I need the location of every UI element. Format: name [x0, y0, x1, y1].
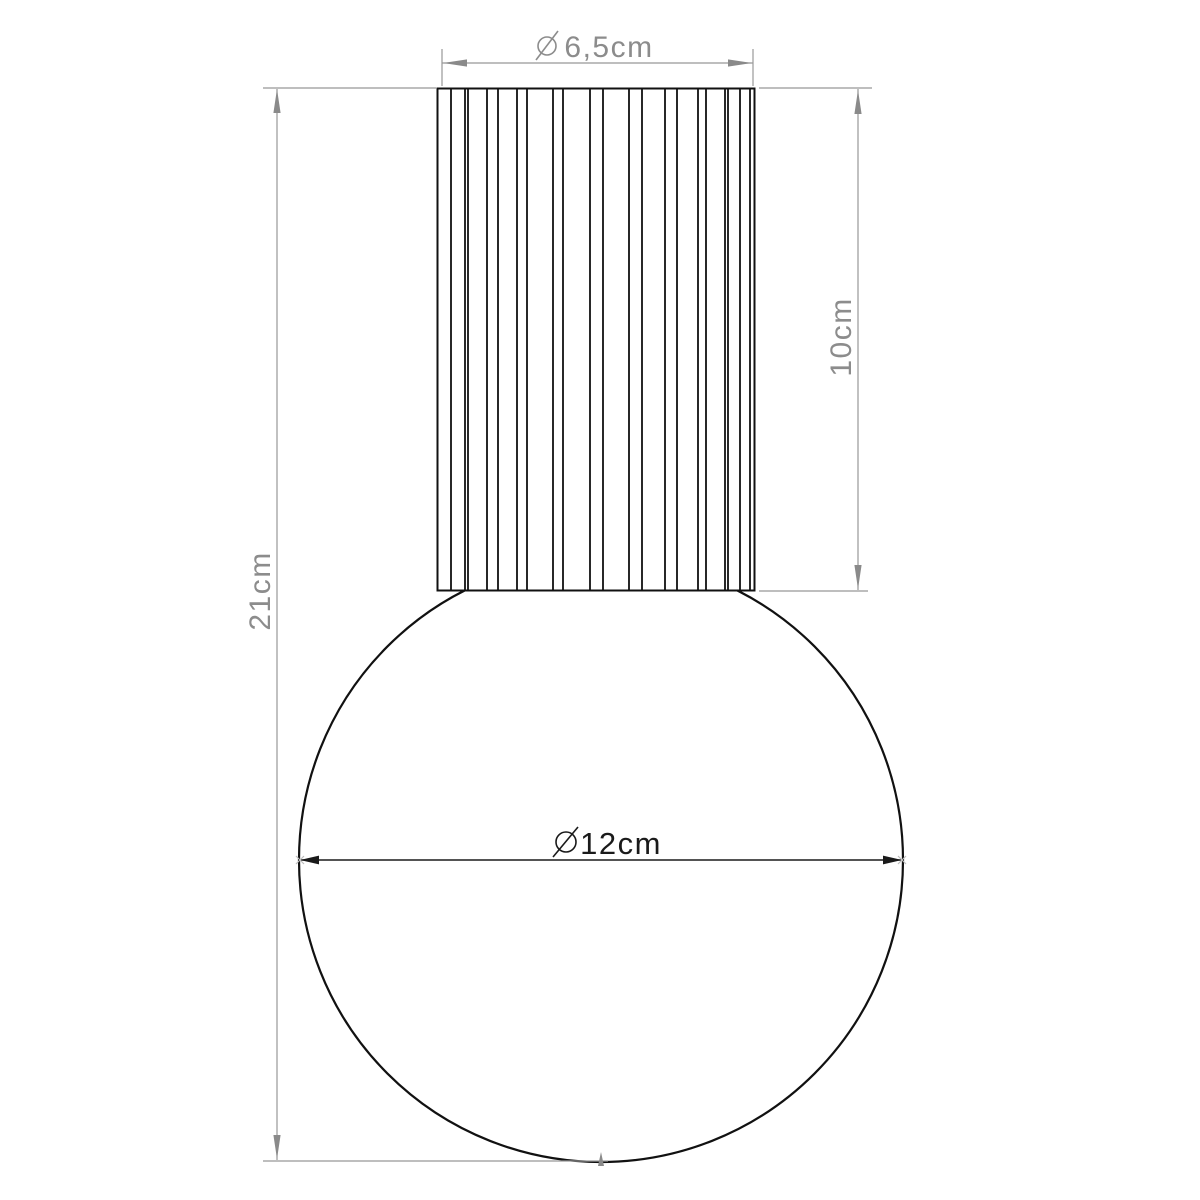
cylinder-outline: [438, 89, 755, 591]
cylinder: [438, 89, 755, 591]
dim-fitting-height-label: 10cm: [825, 297, 858, 376]
tangent-marker-icon: [598, 1152, 604, 1166]
diameter-symbol: [536, 31, 558, 60]
arrow-down-icon: [273, 1135, 280, 1159]
dim-top-diameter-label: 6,5cm: [564, 31, 653, 64]
drawing-canvas: 6,5cm 10cm 21cm 12cm: [0, 0, 1200, 1200]
arrow-down-icon: [854, 565, 861, 589]
dim-globe-diameter-label: 12cm: [580, 826, 662, 861]
diameter-symbol: [553, 827, 578, 857]
dim-top-diameter: 6,5cm: [442, 31, 753, 86]
arrow-left-icon: [443, 59, 467, 66]
dim-total-height-label: 21cm: [244, 551, 277, 630]
dim-fitting-height: 10cm: [759, 88, 872, 591]
arrow-up-icon: [273, 89, 280, 113]
dim-globe-diameter: 12cm: [296, 826, 906, 864]
technical-drawing: 6,5cm 10cm 21cm 12cm: [0, 0, 1200, 1200]
arrow-right-icon: [728, 59, 752, 66]
arrow-up-icon: [854, 90, 861, 114]
